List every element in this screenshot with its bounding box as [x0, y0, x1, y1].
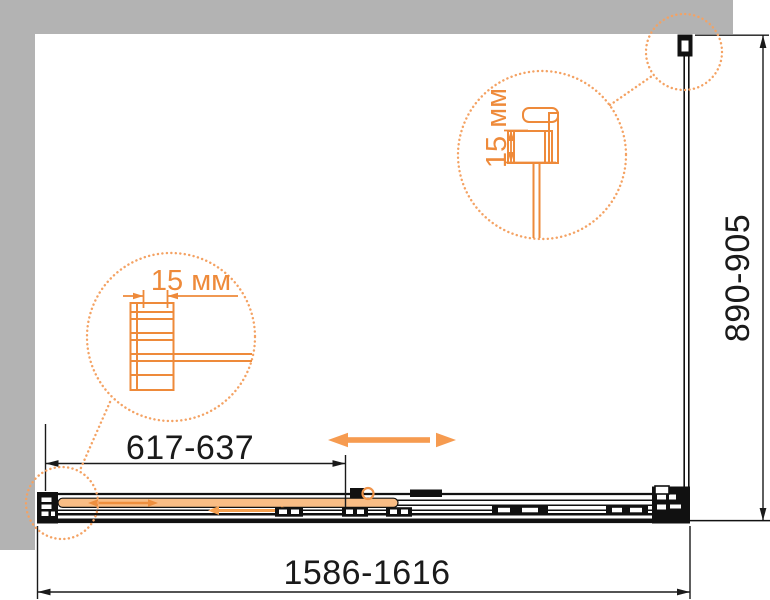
right-corner-post: [652, 486, 690, 524]
detail-label-15mm-right: 15 мм: [482, 68, 512, 188]
arrowhead-down: [760, 508, 767, 521]
arrowhead-left: [38, 589, 51, 596]
drawing-canvas: [0, 0, 770, 600]
side-panel-profile-slot: [682, 41, 689, 52]
dimension-label-door-width: 617-637: [90, 433, 290, 463]
profile-section-drawing: [508, 108, 558, 238]
left-wall-profile: [37, 492, 58, 524]
track-assembly: [37, 486, 770, 524]
shower-enclosure-plan-drawing: 617-637 1586-1616 890-905 15 мм 15 мм: [0, 0, 770, 600]
arrowhead-left: [46, 460, 59, 467]
detail-label-15mm-left: 15 мм: [131, 266, 251, 296]
arrowhead-right: [677, 589, 690, 596]
balloon-leader-line: [610, 76, 652, 105]
wall-top: [0, 0, 733, 34]
arrowhead-right: [333, 460, 346, 467]
slide-direction-arrow: [328, 433, 456, 447]
dimension-label-total-width: 1586-1616: [247, 556, 487, 590]
wall-left: [0, 0, 35, 550]
side-panel: [684, 56, 689, 490]
dimension-label-side-depth: 890-905: [718, 178, 758, 378]
profile-section-drawing: [131, 303, 253, 390]
track-bottom-rail: [37, 519, 690, 524]
arrowhead-up: [760, 35, 767, 48]
